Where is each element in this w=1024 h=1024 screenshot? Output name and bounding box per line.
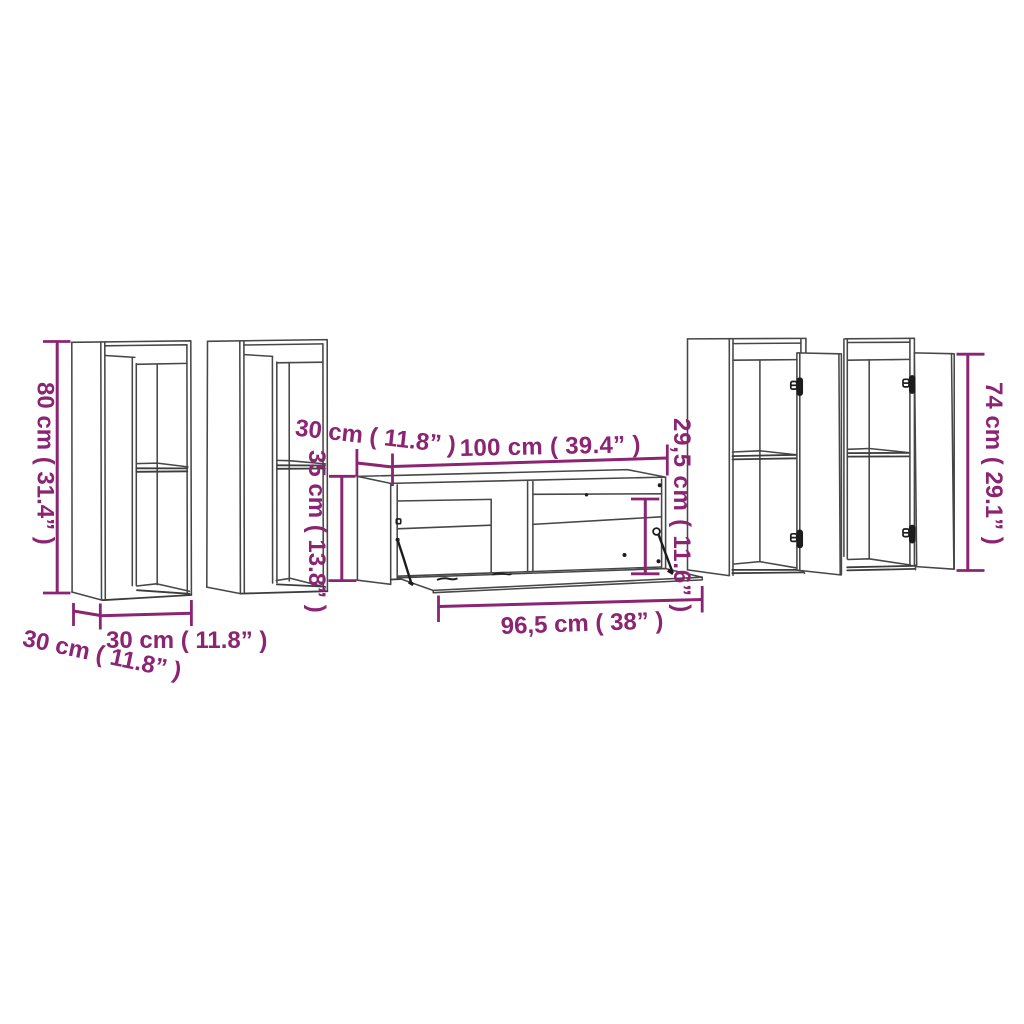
svg-text:74 cm ( 29.1” ): 74 cm ( 29.1” ) bbox=[980, 382, 1007, 545]
svg-text:100 cm ( 39.4” ): 100 cm ( 39.4” ) bbox=[460, 431, 641, 462]
svg-text:96,5 cm ( 38” ): 96,5 cm ( 38” ) bbox=[500, 607, 664, 640]
svg-text:35 cm ( 13.8” ): 35 cm ( 13.8” ) bbox=[303, 450, 330, 613]
svg-text:80 cm ( 31.4” ): 80 cm ( 31.4” ) bbox=[32, 382, 59, 545]
svg-text:29,5 cm ( 11.6” ): 29,5 cm ( 11.6” ) bbox=[668, 418, 695, 613]
